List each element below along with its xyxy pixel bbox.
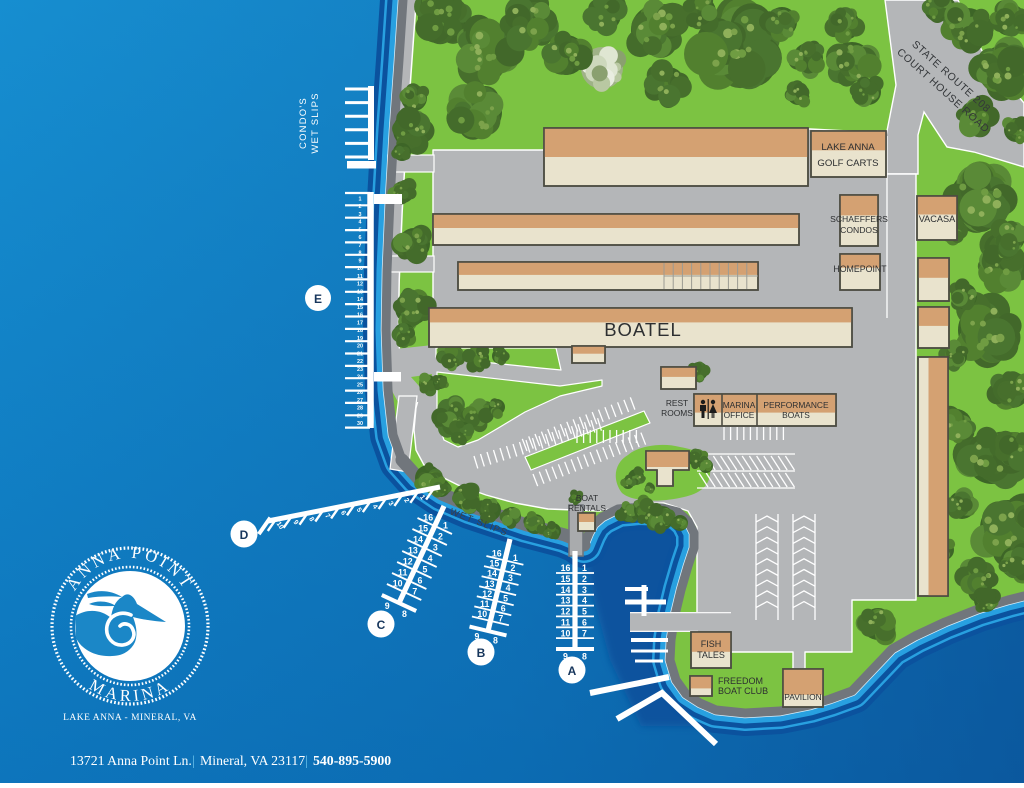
svg-text:13: 13 <box>408 546 418 556</box>
svg-text:10: 10 <box>561 628 571 638</box>
svg-text:10: 10 <box>393 579 403 589</box>
svg-text:1: 1 <box>359 196 362 202</box>
svg-text:21: 21 <box>357 351 363 357</box>
svg-text:4: 4 <box>582 596 587 606</box>
svg-text:13: 13 <box>561 596 571 606</box>
svg-text:18: 18 <box>357 328 363 334</box>
svg-text:3: 3 <box>582 585 587 595</box>
svg-text:BOATEL: BOATEL <box>604 319 682 340</box>
svg-text:HOMEPOINT: HOMEPOINT <box>833 264 887 274</box>
svg-text:23: 23 <box>357 367 363 373</box>
svg-text:CONDO'S: CONDO'S <box>298 97 309 149</box>
svg-text:Mineral, VA 23117: Mineral, VA 23117 <box>200 753 305 768</box>
svg-text:LAKE ANNA: LAKE ANNA <box>821 142 875 153</box>
svg-text:FREEDOM: FREEDOM <box>718 676 763 686</box>
svg-text:9: 9 <box>385 601 390 611</box>
svg-text:14: 14 <box>357 297 363 303</box>
svg-text:22: 22 <box>357 359 363 365</box>
svg-text:13: 13 <box>357 289 363 295</box>
svg-text:PERFORMANCE: PERFORMANCE <box>763 400 829 410</box>
svg-text:11: 11 <box>357 274 363 280</box>
svg-text:14: 14 <box>487 569 497 579</box>
svg-text:|: | <box>192 753 195 768</box>
svg-text:2: 2 <box>510 563 515 573</box>
svg-text:14: 14 <box>561 585 571 595</box>
svg-text:14: 14 <box>413 535 423 545</box>
svg-text:8: 8 <box>359 251 362 257</box>
svg-text:16: 16 <box>492 549 502 559</box>
svg-text:12: 12 <box>403 557 413 567</box>
svg-text:16: 16 <box>357 313 363 319</box>
svg-text:4: 4 <box>506 583 511 593</box>
svg-text:E: E <box>314 292 322 306</box>
svg-text:7: 7 <box>498 613 503 623</box>
svg-text:15: 15 <box>357 305 363 311</box>
svg-text:16: 16 <box>561 563 571 573</box>
svg-text:PAVILION: PAVILION <box>784 692 821 702</box>
svg-text:6: 6 <box>359 235 362 241</box>
svg-text:12: 12 <box>561 607 571 617</box>
svg-text:30: 30 <box>357 421 363 427</box>
svg-text:12: 12 <box>357 282 363 288</box>
svg-text:11: 11 <box>398 568 407 578</box>
svg-text:17: 17 <box>357 320 363 326</box>
svg-text:BOAT: BOAT <box>576 493 598 503</box>
svg-text:15: 15 <box>490 559 500 569</box>
svg-text:7: 7 <box>412 587 417 597</box>
svg-text:8: 8 <box>493 636 498 646</box>
svg-text:10: 10 <box>357 266 363 272</box>
svg-text:20: 20 <box>357 344 363 350</box>
svg-text:OFFICE: OFFICE <box>724 410 755 420</box>
svg-text:11: 11 <box>561 618 570 628</box>
svg-text:5: 5 <box>359 227 362 233</box>
svg-text:BOAT CLUB: BOAT CLUB <box>718 686 768 696</box>
svg-text:540-895-5900: 540-895-5900 <box>313 753 391 768</box>
svg-text:5: 5 <box>582 607 587 617</box>
svg-text:3: 3 <box>433 543 438 553</box>
svg-text:D: D <box>240 528 249 542</box>
svg-text:13721 Anna Point Ln.: 13721 Anna Point Ln. <box>70 753 192 768</box>
svg-text:A: A <box>568 664 577 678</box>
svg-text:3: 3 <box>508 573 513 583</box>
svg-text:B: B <box>477 646 486 660</box>
svg-text:1: 1 <box>443 521 448 531</box>
svg-text:8: 8 <box>402 609 407 619</box>
svg-text:7: 7 <box>359 243 362 249</box>
svg-text:1: 1 <box>582 563 587 573</box>
svg-text:26: 26 <box>357 390 363 396</box>
svg-text:13: 13 <box>485 579 495 589</box>
svg-text:GOLF CARTS: GOLF CARTS <box>817 158 878 169</box>
svg-text:29: 29 <box>357 413 363 419</box>
svg-text:6: 6 <box>582 618 587 628</box>
svg-text:15: 15 <box>418 524 428 534</box>
svg-text:9: 9 <box>359 258 362 264</box>
svg-text:11: 11 <box>480 599 489 609</box>
svg-text:BOATS: BOATS <box>782 410 810 420</box>
svg-text:6: 6 <box>501 603 506 613</box>
svg-text:VACASA: VACASA <box>919 214 956 224</box>
svg-text:2: 2 <box>438 532 443 542</box>
svg-text:12: 12 <box>482 589 492 599</box>
svg-text:15: 15 <box>561 574 571 584</box>
svg-text:2: 2 <box>582 574 587 584</box>
svg-text:10: 10 <box>477 609 487 619</box>
svg-text:6: 6 <box>417 576 422 586</box>
svg-text:TALES: TALES <box>697 650 725 660</box>
svg-text:RENTALS: RENTALS <box>568 503 606 513</box>
svg-text:4: 4 <box>428 554 433 564</box>
svg-text:MARINA: MARINA <box>723 400 756 410</box>
svg-text:3: 3 <box>359 212 362 218</box>
svg-text:C: C <box>377 618 386 632</box>
svg-text:27: 27 <box>357 398 363 404</box>
svg-text:25: 25 <box>357 382 363 388</box>
svg-text:2: 2 <box>359 204 362 210</box>
svg-text:ROOMS: ROOMS <box>661 408 693 418</box>
svg-text:5: 5 <box>423 565 428 575</box>
svg-text:24: 24 <box>357 375 363 381</box>
svg-text:5: 5 <box>503 593 508 603</box>
svg-text:28: 28 <box>357 406 363 412</box>
svg-text:7: 7 <box>582 628 587 638</box>
svg-text:WET SLIPS: WET SLIPS <box>310 92 321 153</box>
svg-text:1: 1 <box>513 553 518 563</box>
svg-text:SCHAEFFERS: SCHAEFFERS <box>830 214 888 224</box>
svg-text:4: 4 <box>359 220 362 226</box>
svg-text:|: | <box>305 753 308 768</box>
svg-text:FISH: FISH <box>701 639 722 649</box>
svg-text:19: 19 <box>357 336 363 342</box>
svg-text:8: 8 <box>582 652 587 662</box>
svg-text:CONDOS: CONDOS <box>840 225 878 235</box>
svg-text:REST: REST <box>666 398 688 408</box>
svg-text:16: 16 <box>423 513 433 523</box>
svg-text:LAKE ANNA - MINERAL, VA: LAKE ANNA - MINERAL, VA <box>63 713 197 723</box>
